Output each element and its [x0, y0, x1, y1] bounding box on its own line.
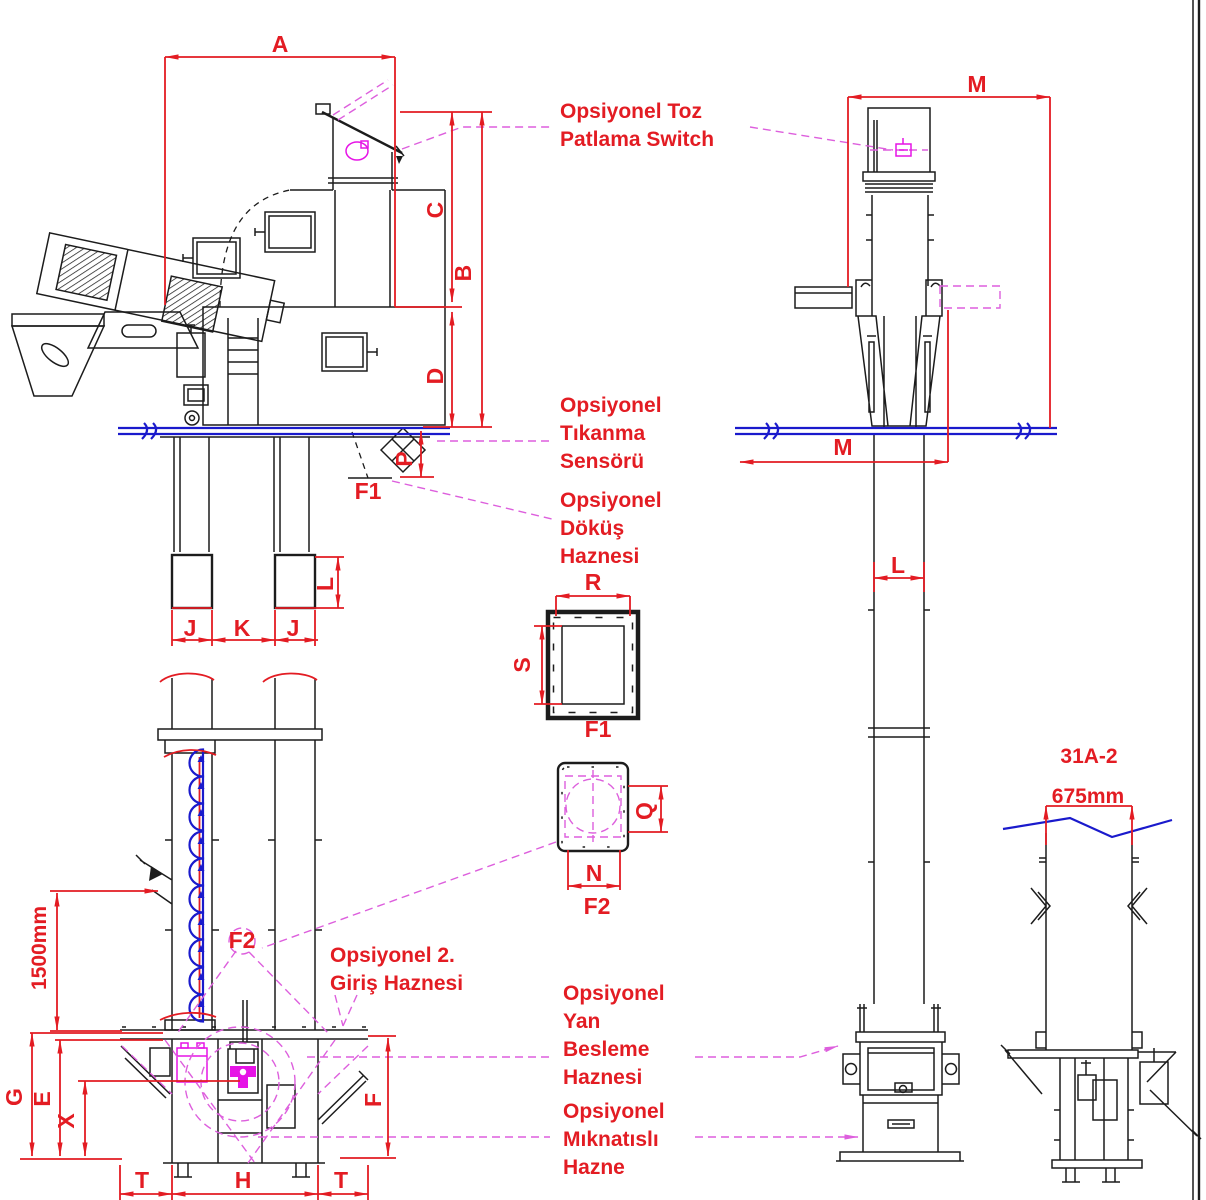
dim-f: F	[360, 1093, 386, 1107]
dim-1500mm: 1500mm	[28, 906, 51, 990]
legs-and-buckets-elevation	[136, 673, 322, 1030]
label-f1-spout: F1	[355, 478, 382, 504]
note-yan-line3: Besleme	[563, 1038, 649, 1061]
note-yan-line4: Haznesi	[563, 1066, 642, 1089]
leg-cross-sections	[172, 555, 315, 608]
label-f2-callout: F2	[229, 927, 256, 953]
drive-motor-assembly	[37, 233, 289, 345]
dim-a: A	[272, 31, 289, 57]
note-toz-line2: Patlama Switch	[560, 128, 714, 151]
dim-b: B	[450, 265, 476, 282]
note-tikanma-line2: Tıkanma	[560, 422, 646, 445]
note-tikanma-line1: Opsiyonel	[560, 394, 662, 417]
dim-s: S	[509, 657, 535, 672]
dim-d: D	[422, 368, 448, 385]
dim-r: R	[585, 569, 602, 595]
dim-t-left: T	[135, 1167, 149, 1193]
note-dokus-line3: Haznesi	[560, 545, 639, 568]
sheet-frame	[1193, 0, 1199, 1200]
motor-mount-bracket	[12, 312, 198, 396]
dim-e: E	[29, 1091, 55, 1106]
note-mik-line3: Hazne	[563, 1156, 625, 1179]
dim-t-right: T	[334, 1167, 348, 1193]
dim-n: N	[586, 860, 603, 886]
dim-c: C	[422, 202, 448, 219]
note-dokus-line1: Opsiyonel	[560, 489, 662, 512]
note-yan-line2: Yan	[563, 1010, 600, 1033]
label-f1-section: F1	[585, 716, 612, 742]
dim-k: K	[234, 615, 251, 641]
head-front-view	[795, 108, 942, 428]
column-break-zigzag	[1003, 818, 1172, 837]
section-f1-flange	[548, 612, 638, 718]
note-giris-line2: Giriş Haznesi	[330, 972, 463, 995]
dim-l-column: L	[891, 552, 905, 578]
motor-grille-icon	[56, 244, 116, 300]
feed-direction-arrow-icon	[149, 866, 163, 881]
detail-31a2-view	[1001, 833, 1201, 1182]
break-marks	[160, 673, 317, 1020]
dim-j-left: J	[184, 615, 197, 641]
note-mik-line1: Opsiyonel	[563, 1100, 665, 1123]
drawing-canvas: A C B D P F1 M M L R S F1 Q N F2 J K J L…	[0, 0, 1206, 1200]
explosion-vent-roof	[316, 104, 404, 164]
option-notes: Opsiyonel Toz Patlama Switch Opsiyonel T…	[330, 100, 714, 1179]
dim-j-right: J	[287, 615, 300, 641]
note-tikanma-line3: Sensörü	[560, 450, 644, 473]
dim-m-bottom: M	[833, 434, 852, 460]
motor-grille-icon	[162, 276, 222, 332]
section-f2-flange	[558, 763, 628, 851]
label-f2-section: F2	[584, 893, 611, 919]
elevator-dimension-drawing: A C B D P F1 M M L R S F1 Q N F2 J K J L…	[0, 0, 1206, 1200]
floor-datum-lines	[118, 423, 1172, 837]
note-dokus-line2: Döküş	[560, 517, 624, 540]
optional-side-arm-phantom	[940, 286, 1000, 308]
dim-l-leg: L	[312, 577, 338, 591]
note-mik-line2: Mıknatıslı	[563, 1128, 659, 1151]
note-yan-line1: Opsiyonel	[563, 982, 665, 1005]
dim-675mm: 675mm	[1052, 785, 1124, 808]
option-phantom-layer	[122, 80, 1000, 1163]
buckets	[189, 750, 203, 1022]
elevator-column-front	[868, 434, 930, 1004]
dim-h: H	[235, 1167, 252, 1193]
note-giris-line1: Opsiyonel 2.	[330, 944, 455, 967]
dim-g: G	[1, 1088, 27, 1106]
dim-p: P	[391, 451, 417, 466]
dim-q: Q	[631, 802, 657, 820]
dim-m-top: M	[967, 71, 986, 97]
dim-x: X	[53, 1113, 79, 1129]
note-toz-line1: Opsiyonel Toz	[560, 100, 702, 123]
f1-bolt-holes	[554, 618, 633, 713]
detail-title: 31A-2	[1060, 745, 1117, 768]
